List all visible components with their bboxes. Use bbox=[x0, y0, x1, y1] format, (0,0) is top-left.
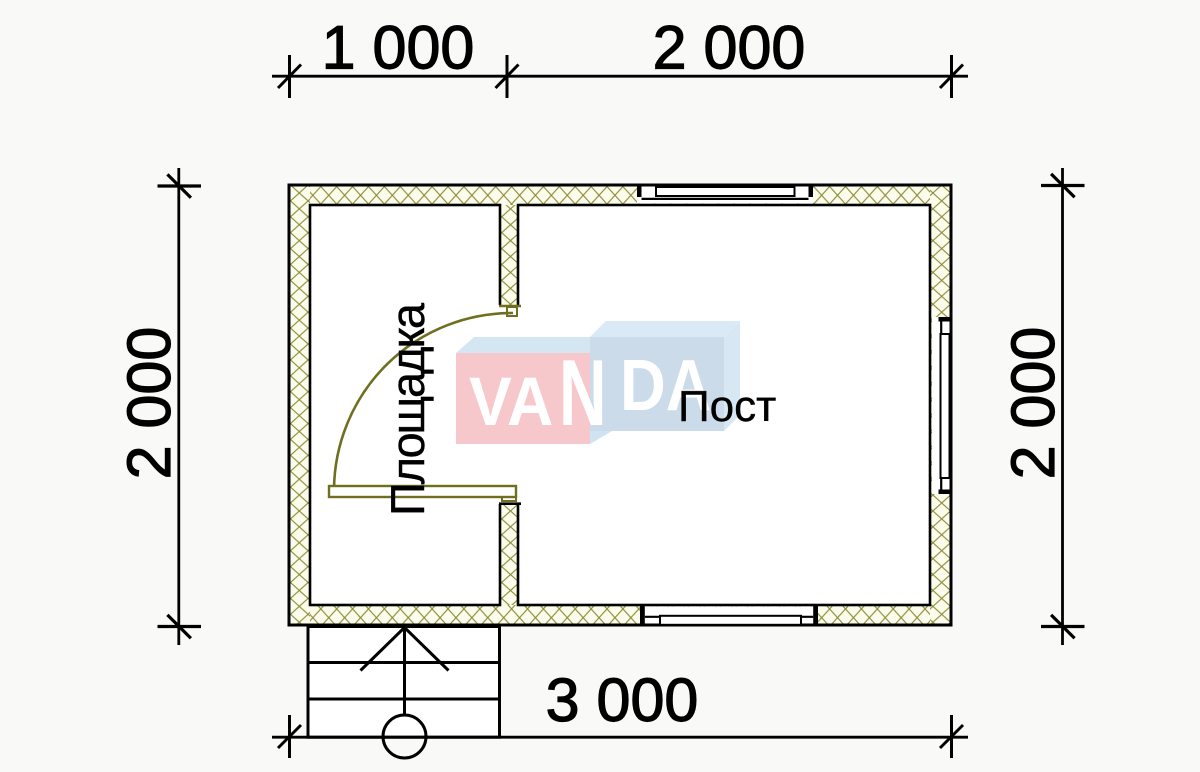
svg-text:Площадка: Площадка bbox=[381, 302, 434, 516]
svg-text:3 000: 3 000 bbox=[546, 666, 699, 734]
svg-text:2 000: 2 000 bbox=[115, 327, 183, 480]
svg-text:2 000: 2 000 bbox=[999, 327, 1067, 480]
svg-text:VA: VA bbox=[469, 364, 553, 441]
svg-text:1 000: 1 000 bbox=[322, 14, 475, 82]
svg-text:2 000: 2 000 bbox=[653, 14, 806, 82]
svg-text:N: N bbox=[559, 342, 607, 446]
svg-text:Пост: Пост bbox=[678, 382, 776, 431]
